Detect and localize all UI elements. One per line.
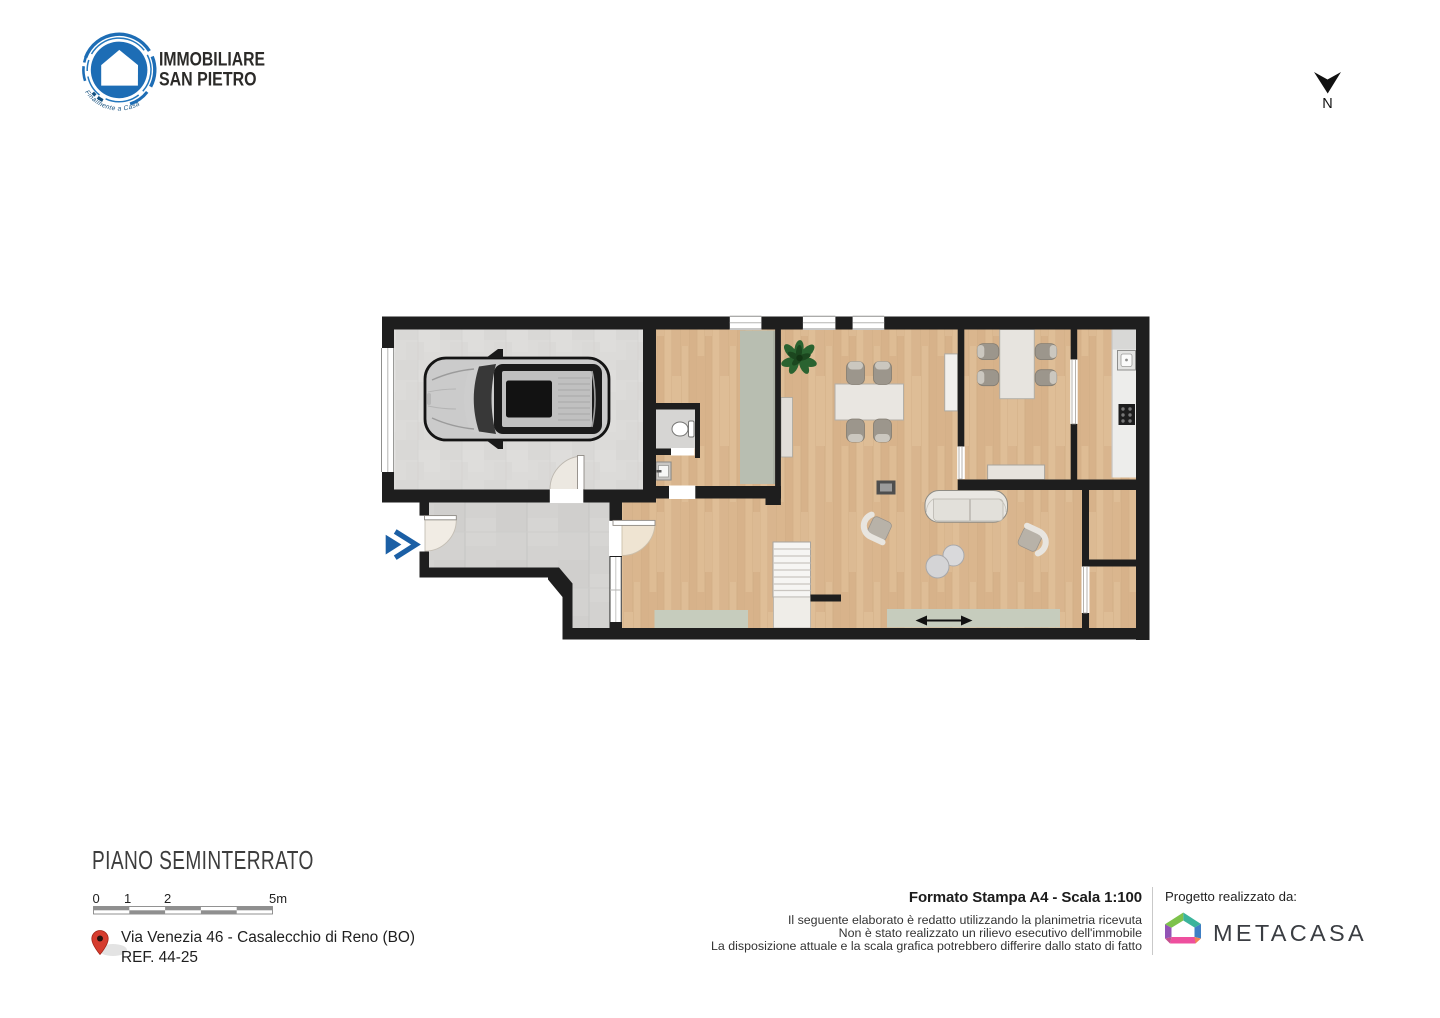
svg-text:N: N (1322, 96, 1332, 112)
svg-text:METACASA: METACASA (1213, 920, 1367, 946)
svg-text:IMMOBILIARE: IMMOBILIARE (159, 49, 265, 71)
svg-text:SAN PIETRO: SAN PIETRO (159, 68, 257, 90)
